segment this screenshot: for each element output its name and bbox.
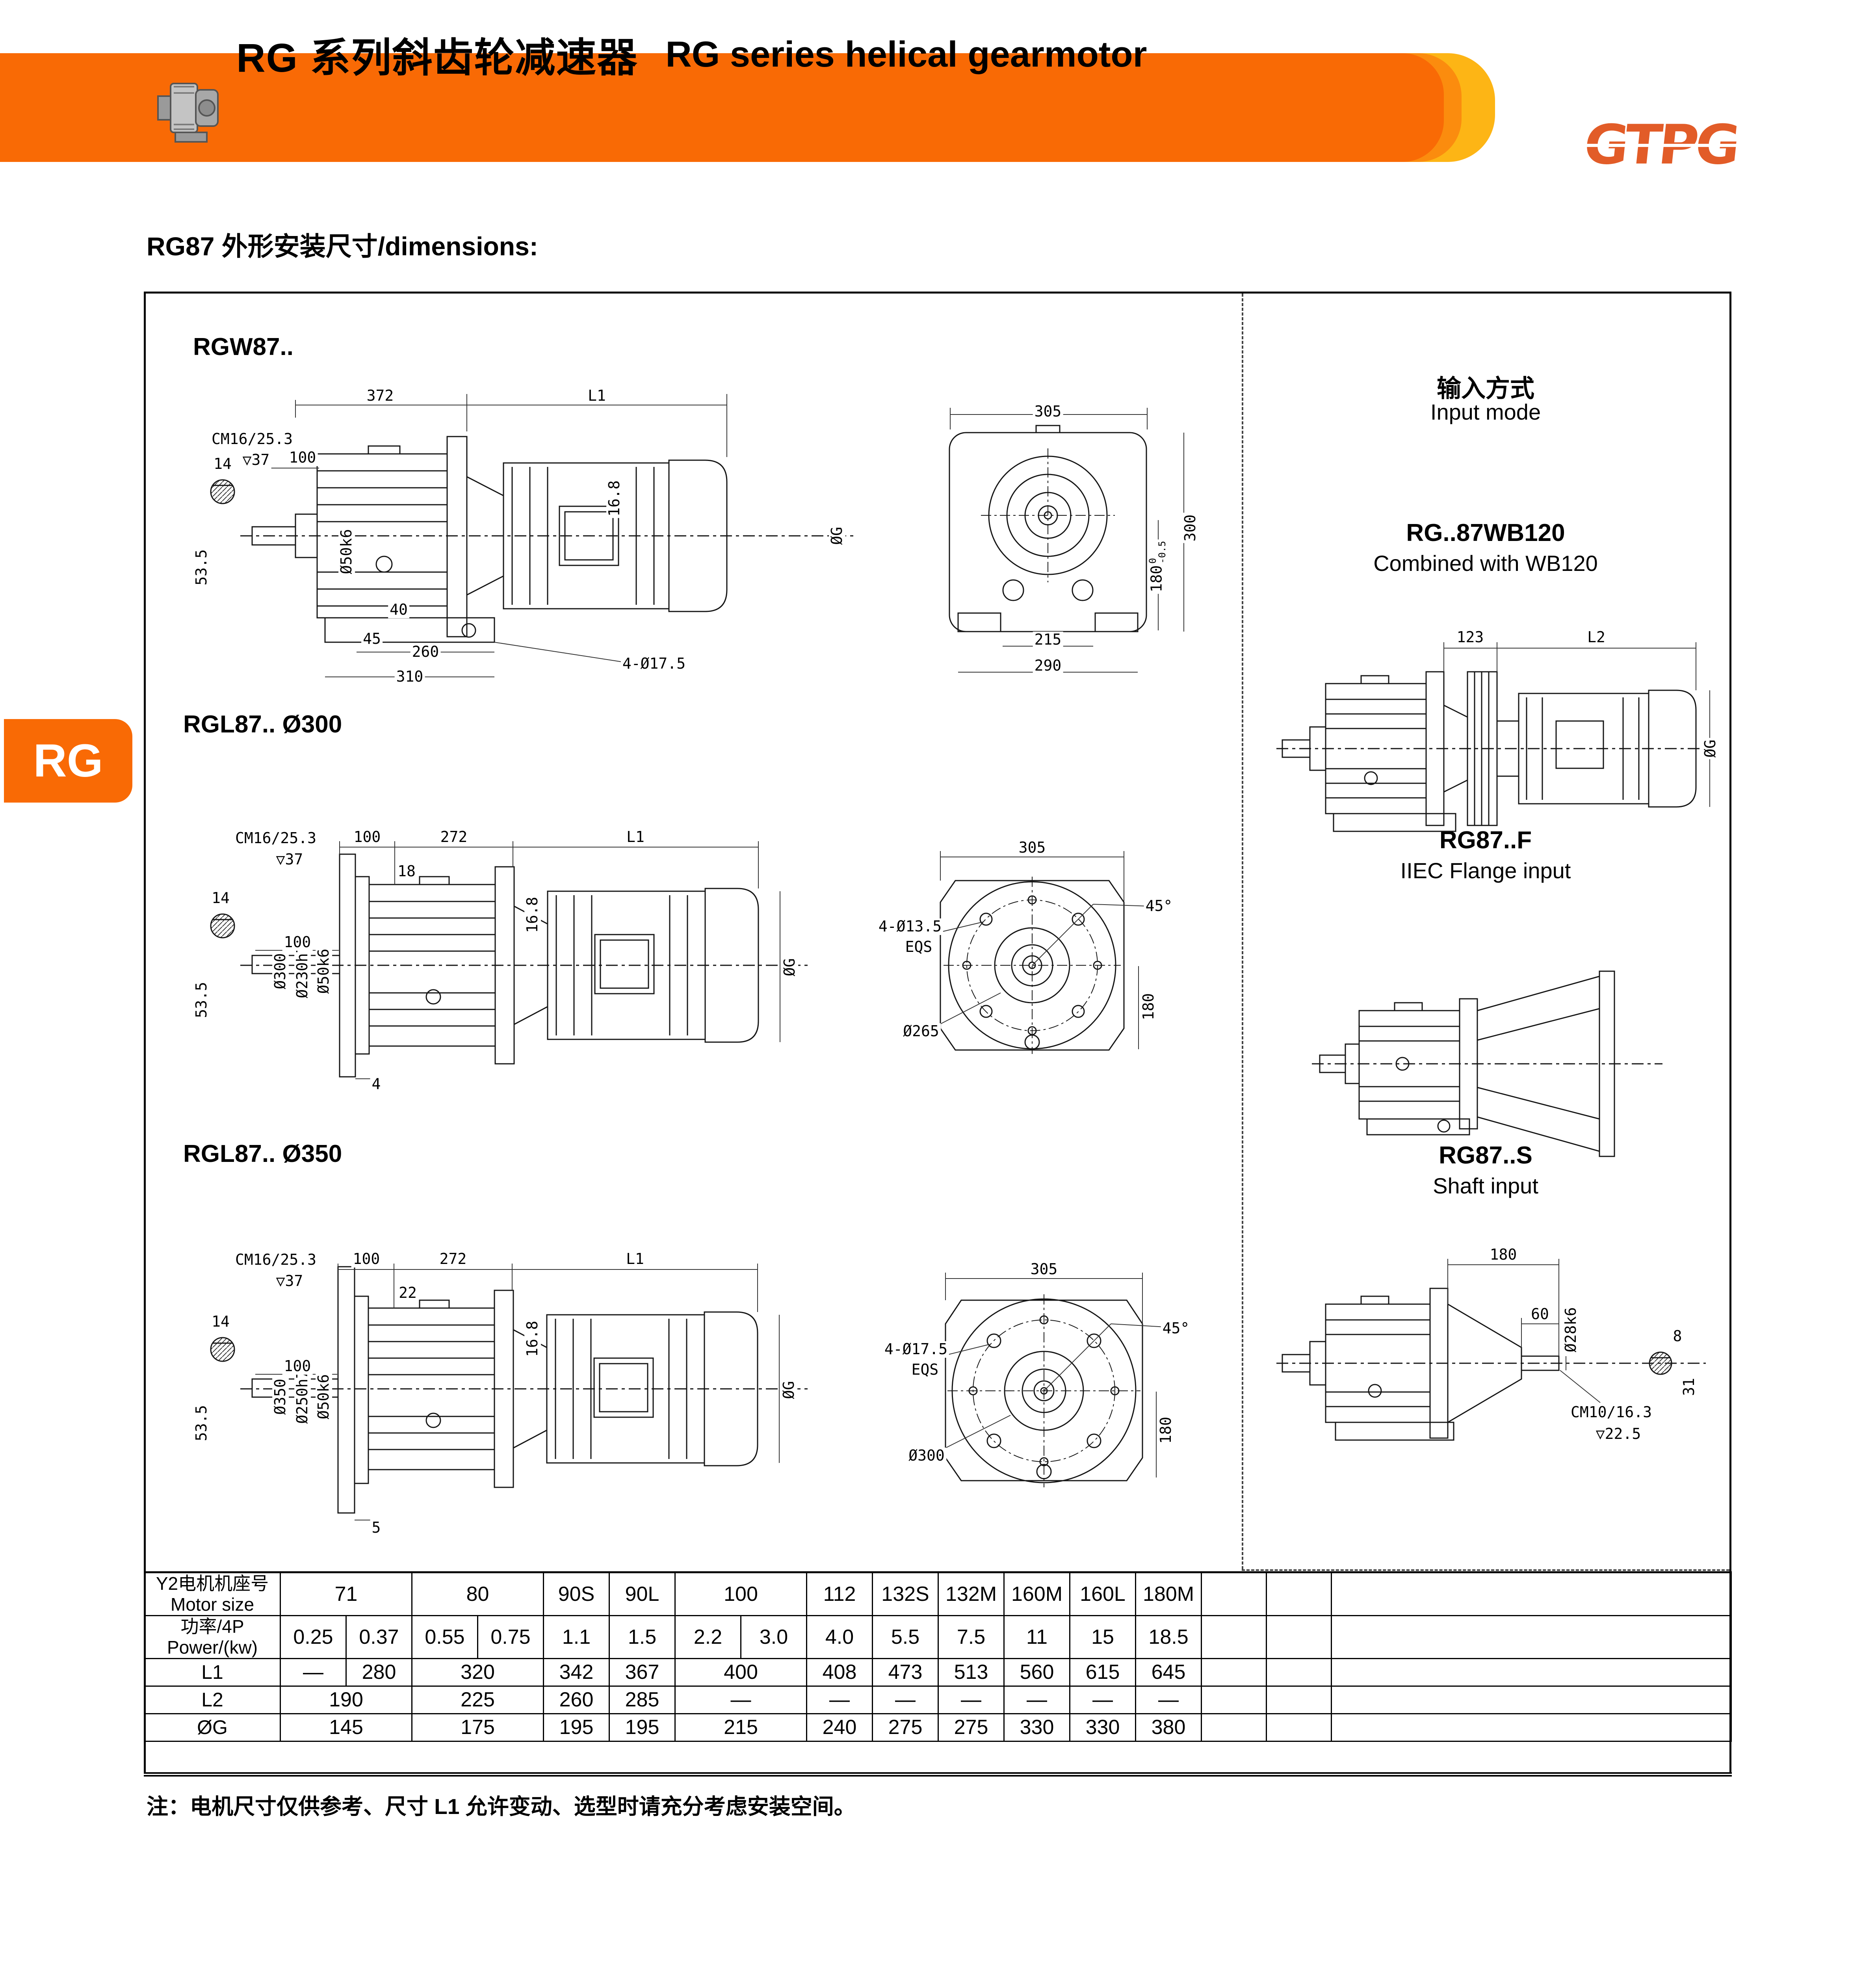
dim-wb120-og: ØG [1702, 738, 1719, 759]
dim-rgl350-depth: ▽37 [275, 1273, 305, 1290]
empty-cell [1202, 1615, 1267, 1658]
dim-rgl350-535: 53.5 [193, 1403, 210, 1443]
dim-rgl300-og: ØG [782, 957, 798, 978]
dim-rgl350-cm: CM16/25.3 [234, 1252, 318, 1268]
dim-rgw87-shaft: Ø50k6 [338, 528, 355, 576]
dim-rgw87-14: 14 [212, 456, 233, 472]
l1-cell: 320 [412, 1658, 544, 1686]
dim-rgw87-372: 372 [365, 388, 396, 404]
dim-rgl300-hub: Ø230h7 [294, 942, 311, 1000]
power-cell: 0.75 [478, 1615, 544, 1658]
dim-rgw87end-290: 290 [1033, 658, 1063, 674]
dim-rgw87-l1: L1 [586, 388, 607, 404]
dim-rgl350-168: 16.8 [524, 1319, 541, 1359]
power-cell: 1.5 [609, 1615, 675, 1658]
dim-rgl300-depth: ▽37 [275, 851, 305, 868]
dim-rgl350fl-holes: 4-Ø17.5 [883, 1341, 949, 1358]
dim-rgw87-535: 53.5 [193, 548, 210, 587]
dim-rgl350-hub: Ø250h7 [294, 1368, 311, 1425]
power-cell: 4.0 [807, 1615, 873, 1658]
power-cell: 0.37 [346, 1615, 412, 1658]
og-cell: 145 [280, 1714, 412, 1741]
dim-rg87s-60: 60 [1529, 1306, 1551, 1323]
dim-rgw87end-180tol: 1800-0.5 [1148, 539, 1167, 594]
dim-rgl300-535: 53.5 [193, 980, 210, 1020]
dim-rgl300-100a: 100 [352, 829, 383, 846]
l1-cell: 367 [609, 1658, 675, 1686]
empty-cell [1332, 1658, 1731, 1686]
motor-size-cell: 160L [1070, 1572, 1136, 1616]
dimension-table: Y2电机机座号 Motor size 71 80 90S 90L 100 112… [144, 1571, 1732, 1742]
l1-cell: 560 [1004, 1658, 1070, 1686]
dim-rgl350-100a: 100 [351, 1251, 382, 1267]
empty-cell [1267, 1572, 1332, 1616]
l1-cell: 280 [346, 1658, 412, 1686]
l1-cell: — [280, 1658, 346, 1686]
table-bottom-rule [144, 1772, 1732, 1777]
dim-rgl300-18: 18 [396, 863, 417, 880]
l2-cell: 190 [280, 1686, 412, 1714]
table-row-l1: L1 — 280 320 342 367 400 408 473 513 560… [145, 1658, 1731, 1686]
og-cell: 275 [938, 1714, 1004, 1741]
l2-cell: — [675, 1686, 807, 1714]
dim-rg87s-180: 180 [1488, 1247, 1519, 1263]
empty-cell [1202, 1658, 1267, 1686]
l1-cell: 513 [938, 1658, 1004, 1686]
og-cell: 195 [544, 1714, 609, 1741]
l2-cell: — [873, 1686, 938, 1714]
dim-rgl300fl-bc: Ø265 [901, 1023, 941, 1040]
dim-rgw87-168: 16.8 [606, 479, 623, 518]
table-row-motor-size: Y2电机机座号 Motor size 71 80 90S 90L 100 112… [145, 1572, 1731, 1616]
dim-rg87s-shaft: Ø28k6 [1563, 1306, 1579, 1354]
dim-rgw87end-300: 300 [1182, 513, 1199, 543]
dim-rg87s-depth: ▽22.5 [1594, 1426, 1642, 1442]
power-cell: 5.5 [873, 1615, 938, 1658]
power-cell: 7.5 [938, 1615, 1004, 1658]
dim-rgl300-4: 4 [370, 1076, 383, 1093]
dim-rgl300-14: 14 [210, 890, 231, 907]
dim-rgw87-cm: CM16/25.3 [210, 431, 294, 448]
og-cell: 240 [807, 1714, 873, 1741]
motor-size-cell: 180M [1136, 1572, 1202, 1616]
row-label-motor-size: Y2电机机座号 Motor size [145, 1572, 280, 1616]
dim-rgl300-l1: L1 [625, 829, 646, 846]
l1-cell: 473 [873, 1658, 938, 1686]
l1-cell: 342 [544, 1658, 609, 1686]
l2-cell: — [807, 1686, 873, 1714]
og-cell: 380 [1136, 1714, 1202, 1741]
dim-rgl350fl-305: 305 [1029, 1261, 1059, 1278]
l1-cell: 645 [1136, 1658, 1202, 1686]
dim-rgl350-14: 14 [210, 1314, 231, 1330]
l2-cell: 225 [412, 1686, 544, 1714]
dim-rgl300fl-45: 45° [1144, 898, 1174, 914]
empty-cell [1332, 1572, 1731, 1616]
motor-size-cell: 132S [873, 1572, 938, 1616]
dim-wb120-l2: L2 [1586, 629, 1607, 646]
dim-rgl300fl-holes: 4-Ø13.5 [877, 918, 943, 935]
dim-rgw87-45: 45 [361, 631, 383, 647]
power-cell: 0.55 [412, 1615, 478, 1658]
og-cell: 275 [873, 1714, 938, 1741]
dim-rgl300fl-eqs: EQS [904, 939, 934, 955]
dim-rgl350-272: 272 [438, 1251, 468, 1267]
dim-rgw87-og: ØG [829, 525, 845, 546]
dim-rgw87-40: 40 [388, 602, 409, 618]
power-cell: 11 [1004, 1615, 1070, 1658]
dim-rgl350-og: ØG [781, 1379, 797, 1401]
dim-wb120-123: 123 [1455, 629, 1486, 646]
empty-cell [1267, 1658, 1332, 1686]
dim-rgl350fl-bc: Ø300 [907, 1448, 946, 1464]
catalog-page: RG 系列斜齿轮减速器 RG series helical gearmotor … [0, 0, 1876, 1970]
dim-rg87s-8: 8 [1672, 1328, 1684, 1345]
power-cell: 18.5 [1136, 1615, 1202, 1658]
table-row-power: 功率/4P Power/(kw) 0.25 0.37 0.55 0.75 1.1… [145, 1615, 1731, 1658]
og-cell: 215 [675, 1714, 807, 1741]
dim-rgl300fl-180: 180 [1140, 992, 1157, 1022]
empty-cell [1267, 1686, 1332, 1714]
dim-rgl350fl-180: 180 [1158, 1415, 1174, 1446]
l1-cell: 615 [1070, 1658, 1136, 1686]
dim-rgl350-flange: Ø350 [272, 1377, 289, 1416]
dim-rgw87-holes: 4-Ø17.5 [621, 656, 687, 672]
row-label-power: 功率/4P Power/(kw) [145, 1615, 280, 1658]
dim-rgl300-272: 272 [439, 829, 469, 846]
table-row-l2: L2 190 225 260 285 — — — — — — — [145, 1686, 1731, 1714]
dim-rgl300-100b: 100 [282, 934, 313, 951]
power-cell: 1.1 [544, 1615, 609, 1658]
dim-rgw87-260: 260 [410, 644, 441, 660]
l2-cell: — [1004, 1686, 1070, 1714]
motor-size-cell: 112 [807, 1572, 873, 1616]
empty-cell [1202, 1686, 1267, 1714]
motor-size-cell: 90S [544, 1572, 609, 1616]
power-cell: 15 [1070, 1615, 1136, 1658]
dim-rgl350fl-eqs: EQS [910, 1362, 940, 1378]
og-cell: 175 [412, 1714, 544, 1741]
empty-cell [1332, 1615, 1731, 1658]
power-cell: 2.2 [675, 1615, 741, 1658]
dim-rgw87-310: 310 [395, 669, 425, 685]
empty-cell [1267, 1615, 1332, 1658]
dim-rgw87-depth: ▽37 [241, 452, 271, 468]
dim-rgl300-shaft: Ø50k6 [316, 947, 332, 995]
l2-cell: — [1070, 1686, 1136, 1714]
motor-size-cell: 100 [675, 1572, 807, 1616]
dim-rgl300fl-305: 305 [1017, 840, 1048, 856]
empty-cell [1202, 1572, 1267, 1616]
motor-size-cell: 132M [938, 1572, 1004, 1616]
l2-cell: — [938, 1686, 1004, 1714]
og-cell: 330 [1070, 1714, 1136, 1741]
l2-cell: 260 [544, 1686, 609, 1714]
row-label-l1: L1 [145, 1658, 280, 1686]
power-cell: 0.25 [280, 1615, 346, 1658]
dim-rgl350-22: 22 [397, 1285, 418, 1301]
dim-rgl350-l1: L1 [624, 1251, 646, 1267]
empty-cell [1332, 1714, 1731, 1741]
motor-size-cell: 80 [412, 1572, 544, 1616]
empty-cell [1267, 1714, 1332, 1741]
dim-rgl350fl-45: 45° [1161, 1320, 1191, 1337]
footnote: 注：电机尺寸仅供参考、尺寸 L1 允许变动、选型时请充分考虑安装空间。 [147, 1789, 856, 1820]
l2-cell: 285 [609, 1686, 675, 1714]
row-label-og: ØG [145, 1714, 280, 1741]
dim-rg87s-cm: CM10/16.3 [1569, 1404, 1653, 1421]
dim-rgl350-5: 5 [370, 1520, 383, 1536]
dim-rgl300-cm: CM16/25.3 [234, 830, 318, 847]
dim-rg87s-31: 31 [1681, 1376, 1698, 1398]
motor-size-cell: 160M [1004, 1572, 1070, 1616]
l1-cell: 408 [807, 1658, 873, 1686]
dim-rgl350-shaft: Ø50k6 [316, 1373, 332, 1421]
motor-size-cell: 90L [609, 1572, 675, 1616]
dim-rgw87end-215: 215 [1033, 632, 1063, 648]
motor-size-cell: 71 [280, 1572, 412, 1616]
dim-rgl300-168: 16.8 [524, 895, 541, 935]
l2-cell: — [1136, 1686, 1202, 1714]
dim-rgl350-100b: 100 [282, 1358, 313, 1375]
row-label-l2: L2 [145, 1686, 280, 1714]
dim-rgw87end-305: 305 [1033, 403, 1063, 420]
dim-rgw87-100: 100 [288, 450, 318, 466]
power-cell: 3.0 [741, 1615, 807, 1658]
og-cell: 330 [1004, 1714, 1070, 1741]
og-cell: 195 [609, 1714, 675, 1741]
l1-cell: 400 [675, 1658, 807, 1686]
dim-rgl300-flange: Ø300 [272, 952, 289, 991]
table-row-og: ØG 145 175 195 195 215 240 275 275 330 3… [145, 1714, 1731, 1741]
empty-cell [1202, 1714, 1267, 1741]
empty-cell [1332, 1686, 1731, 1714]
